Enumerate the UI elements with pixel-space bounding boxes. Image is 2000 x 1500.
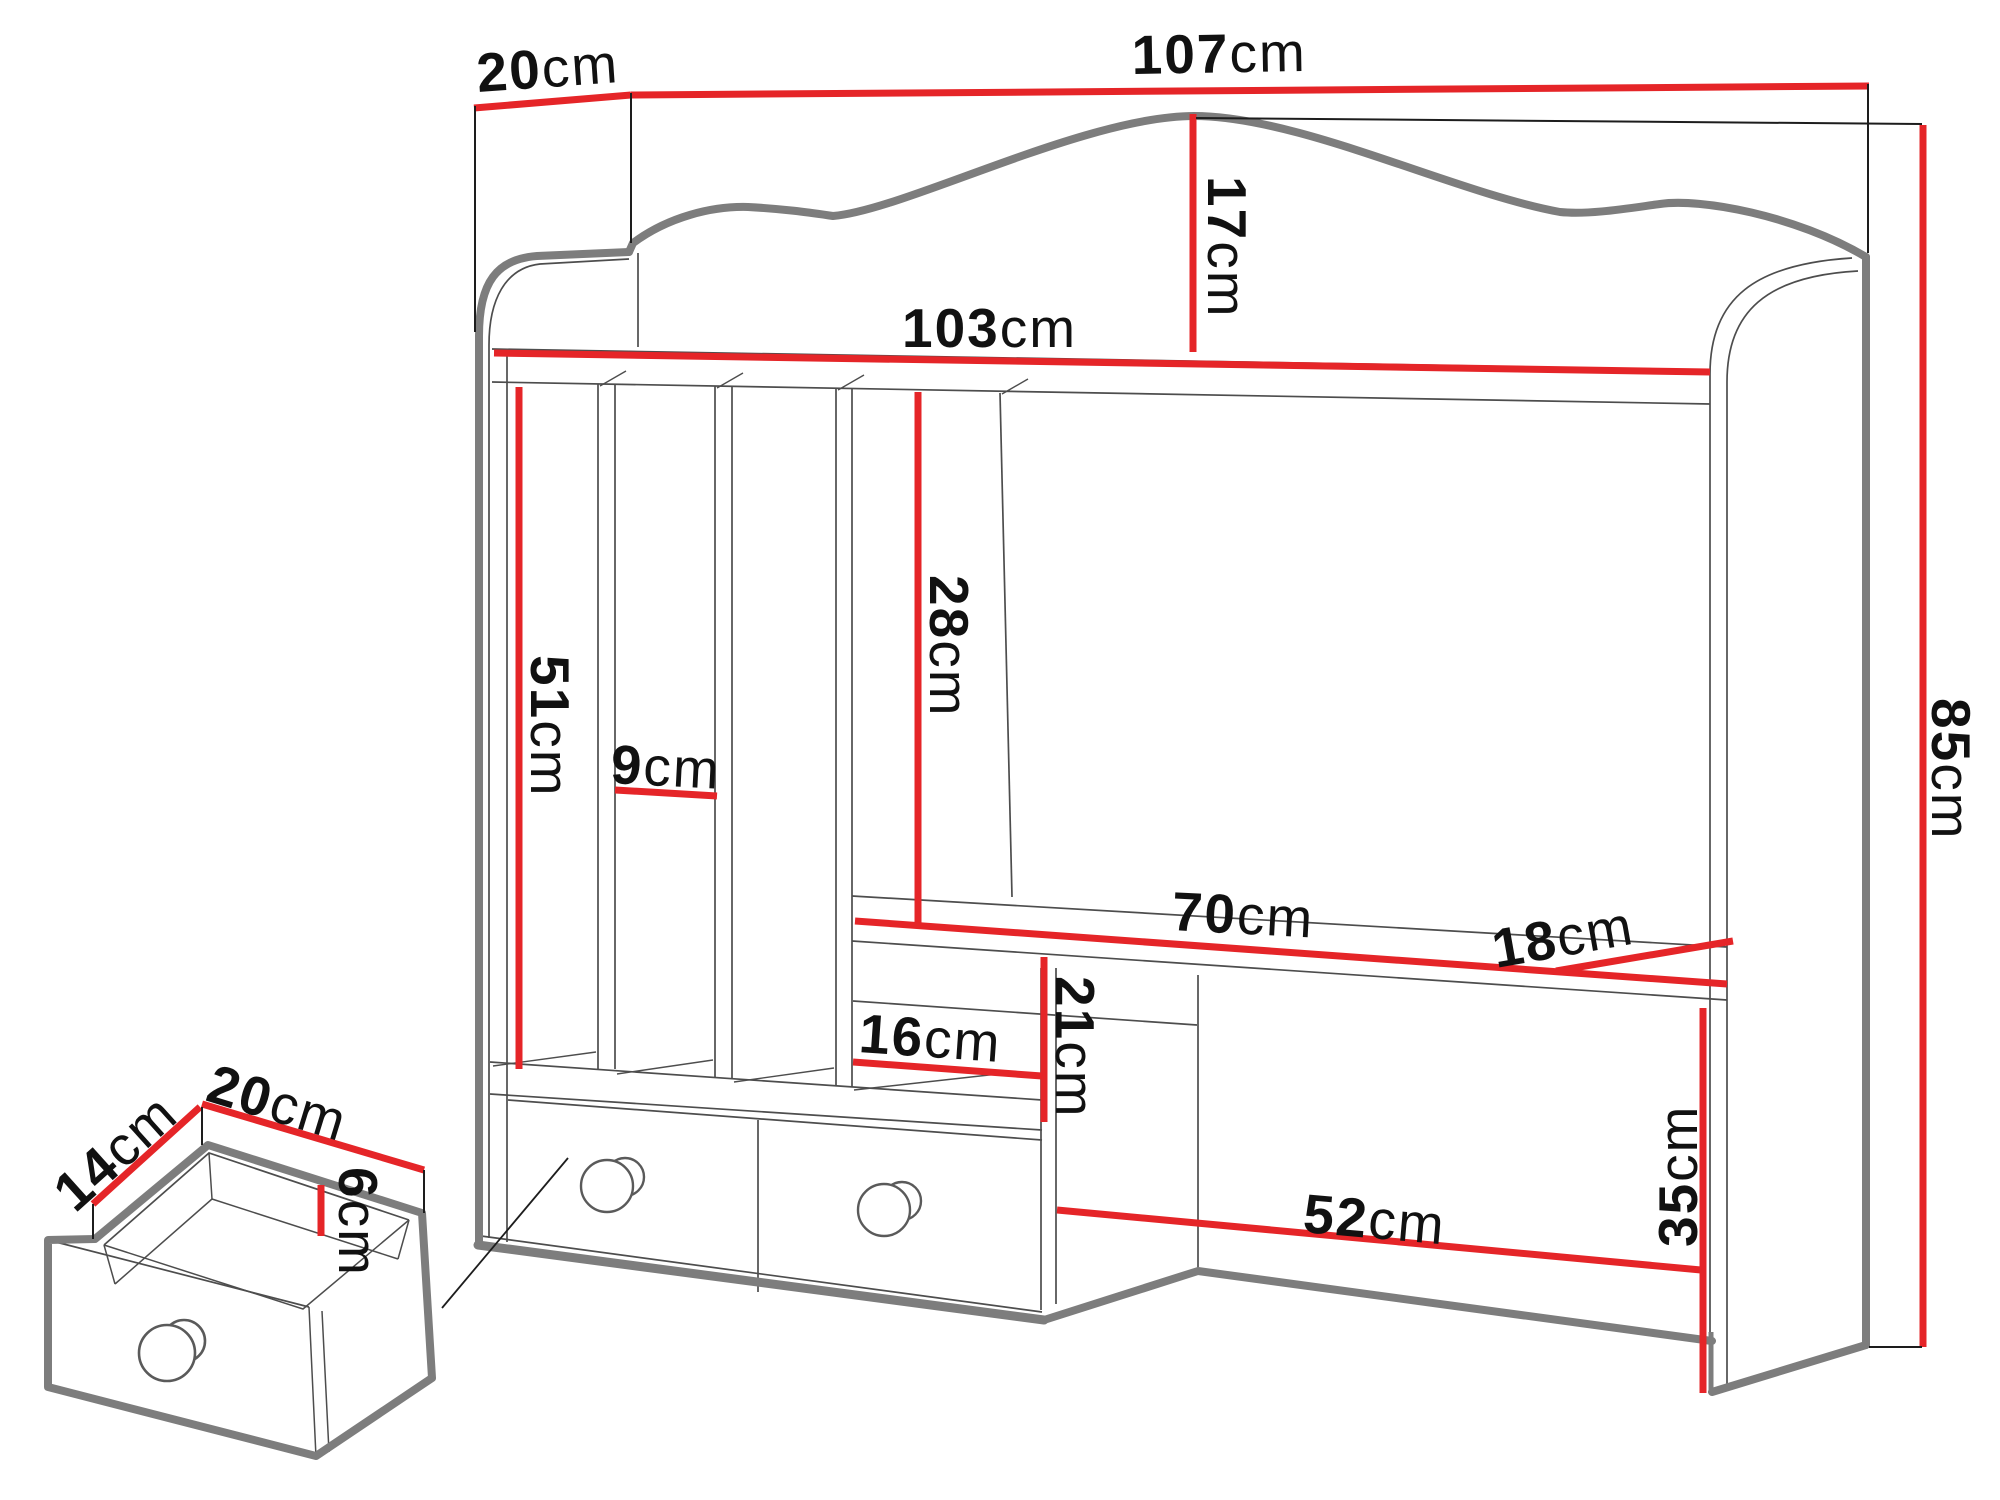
svg-text:85cm: 85cm xyxy=(1920,698,1982,841)
svg-text:20cm: 20cm xyxy=(200,1052,354,1153)
svg-text:20cm: 20cm xyxy=(475,32,621,104)
svg-text:17cm: 17cm xyxy=(1196,176,1258,319)
svg-text:103cm: 103cm xyxy=(902,297,1077,359)
svg-text:16cm: 16cm xyxy=(857,1002,1003,1074)
svg-text:18cm: 18cm xyxy=(1487,894,1638,980)
svg-text:35cm: 35cm xyxy=(1647,1104,1709,1247)
svg-text:52cm: 52cm xyxy=(1301,1182,1448,1256)
svg-text:9cm: 9cm xyxy=(609,733,722,801)
svg-text:21cm: 21cm xyxy=(1044,976,1106,1119)
svg-text:107cm: 107cm xyxy=(1131,21,1307,86)
svg-text:51cm: 51cm xyxy=(519,655,581,798)
svg-text:6cm: 6cm xyxy=(327,1167,389,1277)
svg-text:28cm: 28cm xyxy=(918,575,980,718)
svg-text:14cm: 14cm xyxy=(42,1081,189,1222)
svg-text:70cm: 70cm xyxy=(1170,880,1316,949)
